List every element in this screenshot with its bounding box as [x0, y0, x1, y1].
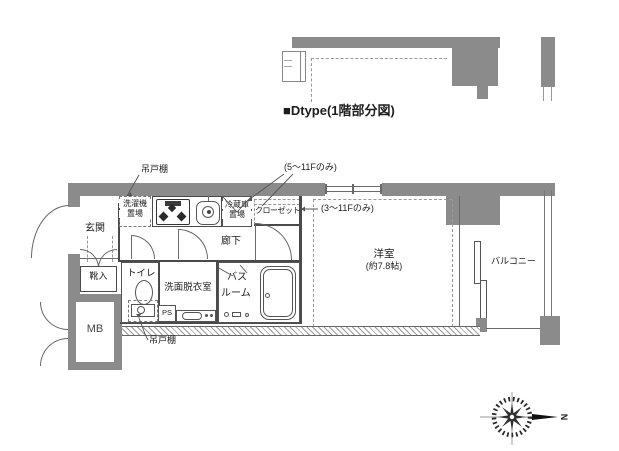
sliding-window-panel: [474, 241, 481, 284]
bathtub-drain: [265, 293, 270, 298]
compass-north-label: N: [559, 414, 569, 421]
west-wall: [68, 183, 80, 207]
room-label-western-room-size: (約7.8帖): [330, 262, 438, 271]
bath-fixture: [232, 312, 241, 317]
wall-line: [300, 51, 301, 82]
annotation-hanging-cupboard-bottom: 吊戸棚: [149, 336, 176, 345]
room-door-arc: [255, 223, 292, 260]
balcony-rail-line: [543, 87, 544, 101]
balcony-edge-line: [486, 328, 544, 329]
room-label-bathroom-2: ルーム: [221, 289, 251, 300]
toilet-tank-faucet: [137, 306, 145, 314]
room-label-fridge-2: 置場: [222, 211, 252, 219]
window-mullion: [325, 184, 327, 194]
basin-fixture: [210, 314, 213, 317]
balcony-rail-line: [551, 87, 552, 101]
annotation-floors-5-11: (5～11Fのみ): [284, 163, 337, 172]
annotation-hanging-cupboard-top: 吊戸棚: [141, 165, 168, 174]
bath-fixture: [224, 312, 229, 317]
room-label-toilet: トイレ: [127, 269, 156, 279]
sink-drain: [207, 210, 211, 214]
west-wall: [68, 254, 80, 294]
closet-dash: [254, 204, 300, 205]
mb-door-arc: [40, 338, 68, 366]
room-label-closet: クローゼット: [255, 207, 300, 215]
washroom-door-arc: [178, 229, 208, 259]
north-east-wall-block: [446, 183, 500, 225]
annotation-floors-3-11: (3～11Fのみ): [321, 204, 374, 213]
closet-dash: [254, 199, 300, 200]
room-label-washroom: 洗面脱衣室: [159, 283, 217, 293]
balcony-rail: [544, 190, 552, 316]
dashed-line: [311, 58, 447, 59]
room-label-washer-2: 置場: [119, 210, 151, 218]
dashed-line: [311, 58, 312, 102]
room-label-washer-1: 洗濯機: [119, 200, 151, 208]
wall-segment: [541, 37, 555, 87]
room-label-shoe-box: 靴入: [80, 272, 117, 281]
room-label-meter-box: MB: [76, 324, 114, 336]
room-label-balcony: バルコニー: [491, 257, 536, 266]
north-wall: [70, 183, 325, 196]
wall-line: [284, 60, 292, 61]
entrance-door-arc: [31, 205, 69, 258]
room-label-genkan: 玄関: [85, 224, 105, 235]
room-dash-line: [452, 199, 453, 327]
room-label-bathroom-1: バス: [227, 273, 247, 284]
room-label-western-room: 洋室: [330, 249, 438, 260]
sliding-window-panel: [480, 280, 487, 323]
bath-fixture: [245, 313, 249, 317]
window-mullion: [380, 184, 382, 194]
room-east-wall-line: [459, 196, 460, 326]
room-label-corridor: 廊下: [221, 237, 241, 248]
mb-door-arc: [40, 302, 68, 330]
room-dash-line: [313, 199, 452, 200]
floor-plan: ■Dtype(1階部分図) MB 玄関 靴入 洗濯機 置場 冷蔵庫 置場: [0, 0, 619, 451]
wall-line: [284, 66, 292, 67]
wall-segment: [477, 86, 488, 99]
room-dash-line: [313, 199, 314, 327]
balcony-pillar: [540, 316, 560, 345]
compass-icon: N: [476, 388, 576, 448]
room-label-pipe-space: PS: [158, 309, 176, 317]
faucet-stem: [208, 196, 209, 201]
basin-fixture: [205, 314, 208, 317]
room-label-fridge-1: 冷蔵庫: [222, 201, 252, 209]
window-mullion: [352, 184, 354, 194]
wall-segment: [452, 37, 498, 86]
washbasin-icon: [182, 312, 202, 320]
toilet-door-arc: [131, 235, 155, 259]
plan-title: ■Dtype(1階部分図): [283, 104, 395, 118]
north-wall: [382, 183, 446, 196]
